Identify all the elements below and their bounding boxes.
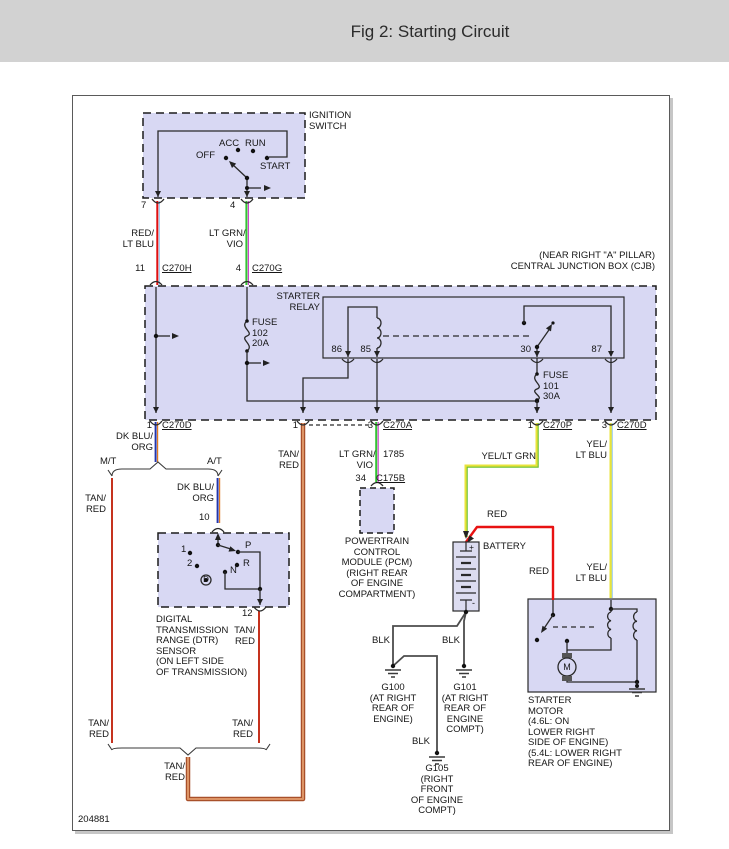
- wire-dkblu-org-at: [218, 478, 220, 523]
- ignition-switch-box: [143, 113, 305, 198]
- motor-brush-top: [562, 653, 572, 658]
- wire-yel-ltgrn: [463, 423, 538, 539]
- motor-brush-bottom: [562, 676, 572, 681]
- battery-symbol: [453, 542, 479, 614]
- c175b-pin: 34: [352, 474, 366, 485]
- relay-pin30: 30: [515, 345, 531, 356]
- relay-pin87: 87: [586, 345, 602, 356]
- ignition-off-label: OFF: [196, 151, 215, 162]
- wire-label-tanred-at-lower: TAN/ RED: [219, 719, 253, 740]
- c270d-left-pin: 1: [138, 421, 152, 432]
- starter-motor-label: STARTER MOTOR (4.6L: ON LOWER RIGHT SIDE…: [528, 696, 622, 770]
- g101-label: G101 (AT RIGHT REAR OF ENGINE COMPT): [420, 683, 510, 736]
- wire-label-yel-ltgrn: YEL/LT GRN: [436, 452, 536, 463]
- c175b-name: C175B: [376, 474, 405, 485]
- tan-red-merge-bracket: [108, 744, 270, 755]
- fuse-101-label: FUSE 101 30A: [543, 371, 568, 403]
- cjb-location-label: (NEAR RIGHT "A" PILLAR) CENTRAL JUNCTION…: [405, 251, 655, 272]
- c270g-pin: 4: [227, 264, 241, 275]
- dtr-pos1: 1: [181, 545, 186, 556]
- wire-label-ltgrn-vio-pcm: LT GRN/ VIO: [339, 450, 373, 471]
- c270a-pin3: 3: [359, 421, 373, 432]
- c270p-pin: 1: [519, 421, 533, 432]
- g105-label: G105 (RIGHT FRONT OF ENGINE COMPT): [392, 764, 482, 817]
- dtr-pos2: 2: [187, 559, 192, 570]
- dtr-posd: D: [201, 575, 211, 586]
- ignition-pin4: 4: [230, 201, 235, 212]
- wire-label-dkblu-org: DK BLU/ ORG: [115, 432, 153, 453]
- dtr-posn: N: [230, 566, 237, 577]
- starting-circuit-diagram: Fig 2: Starting Circuit: [0, 0, 729, 849]
- c270d-right-pin: 3: [593, 421, 607, 432]
- c270a-name: C270A: [383, 421, 412, 432]
- wire-label-blk-g100: BLK: [360, 636, 390, 647]
- ground-g101-symbol: [456, 664, 472, 677]
- wire-dkblu-org-top: [156, 422, 158, 462]
- c270h-pin: 11: [131, 264, 145, 275]
- pcm-label: POWERTRAIN CONTROL MODULE (PCM) (RIGHT R…: [312, 537, 442, 600]
- fuse-102-label: FUSE 102 20A: [252, 318, 277, 350]
- c270h-name: C270H: [162, 264, 192, 275]
- wire-label-tanred-mt: TAN/ RED: [72, 494, 106, 515]
- wire-label-red-top: RED: [487, 510, 507, 521]
- at-label: A/T: [207, 457, 222, 468]
- wire-label-yel-ltblu-bot: YEL/ LT BLU: [567, 563, 607, 584]
- pcm-box: [360, 488, 394, 533]
- wire-label-yel-ltblu-top: YEL/ LT BLU: [567, 440, 607, 461]
- c270g-name: C270G: [252, 264, 282, 275]
- battery-minus: -: [472, 598, 475, 609]
- mt-label: M/T: [100, 457, 116, 468]
- dtr-sensor-box: [158, 533, 289, 607]
- ignition-pin7: 7: [141, 201, 146, 212]
- motor-m-label: M: [561, 662, 573, 673]
- mt-at-split-bracket: [108, 462, 222, 476]
- c270d-left-name: C270D: [162, 421, 192, 432]
- relay-pin85: 85: [355, 345, 371, 356]
- wire-yel-ltblu: [611, 423, 612, 598]
- wire-red-ltblu: [157, 201, 159, 285]
- battery-plus: +: [469, 542, 474, 553]
- starter-relay-label: STARTER RELAY: [260, 292, 320, 313]
- battery-label: BATTERY: [483, 542, 526, 553]
- figure-number: 204881: [78, 815, 110, 826]
- relay-pin86: 86: [326, 345, 342, 356]
- wire-label-tanred-mt-lower: TAN/ RED: [75, 719, 109, 740]
- wire-label-blk-g105: BLK: [400, 737, 430, 748]
- dtr-pin10: 10: [199, 513, 210, 524]
- c270p-name: C270P: [543, 421, 572, 432]
- wire-label-blk-g101: BLK: [430, 636, 460, 647]
- wire-blk-g101: [464, 612, 466, 664]
- wire-label-tanred-c270a: TAN/ RED: [265, 450, 299, 471]
- ignition-run-label: RUN: [245, 139, 266, 150]
- wire-label-dkblu-org-at: DK BLU/ ORG: [176, 483, 214, 504]
- wire-label-tanred-dtr12: TAN/ RED: [221, 626, 255, 647]
- ignition-acc-label: ACC: [219, 139, 239, 150]
- wire-ltgrn-vio-ignition: [246, 201, 248, 285]
- ignition-switch-label: IGNITION SWITCH: [309, 111, 351, 132]
- ignition-start-label: START: [260, 162, 290, 173]
- wire-label-red-bot: RED: [519, 567, 549, 578]
- ground-g100-symbol: [385, 664, 401, 677]
- wire-label-tanred-main: TAN/ RED: [151, 762, 185, 783]
- c270d-right-name: C270D: [617, 421, 647, 432]
- circuit-1785-label: 1785: [383, 450, 404, 461]
- c270a-pin1: 1: [284, 421, 298, 432]
- wire-label-red-ltblu: RED/ LT BLU: [120, 229, 154, 250]
- wire-label-ltgrn-vio: LT GRN/ VIO: [209, 229, 243, 250]
- dtr-posr: R: [243, 559, 250, 570]
- dtr-posp: P: [245, 541, 251, 552]
